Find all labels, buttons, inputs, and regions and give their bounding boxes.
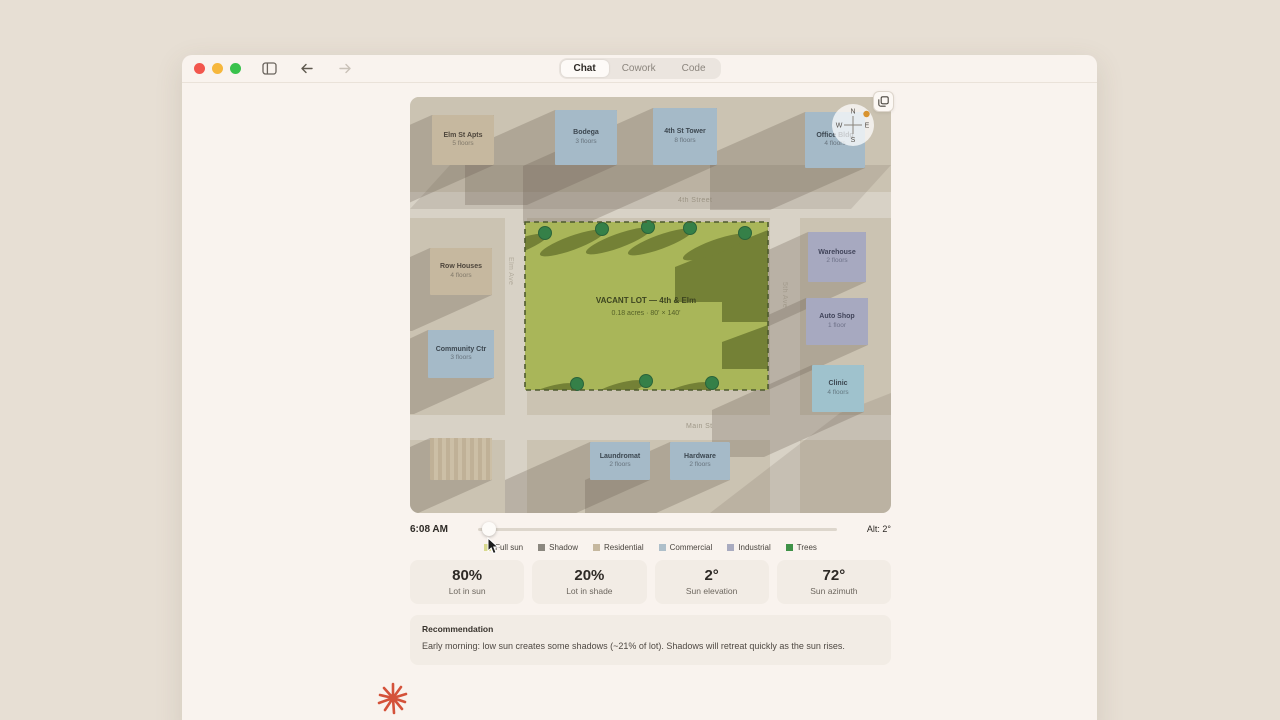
lot-title: VACANT LOT — 4th & Elm	[596, 296, 696, 305]
compass-s: S	[851, 137, 856, 144]
legend-commercial[interactable]: Commercial	[659, 543, 713, 552]
altitude-label: Alt: 2°	[847, 524, 891, 534]
recommendation-body: Early morning: low sun creates some shad…	[422, 640, 879, 654]
residential-swatch	[593, 544, 600, 551]
vacant-lot[interactable]: VACANT LOT — 4th & Elm 0.18 acres · 80' …	[410, 97, 891, 513]
zoom-window-button[interactable]	[230, 63, 241, 74]
sun-position-dot	[863, 111, 869, 117]
mode-tab-group: Chat Cowork Code	[558, 58, 720, 79]
shadow-swatch	[538, 544, 545, 551]
app-window: Chat Cowork Code	[182, 55, 1097, 720]
stat-label: Lot in shade	[536, 586, 642, 596]
commercial-swatch	[659, 544, 666, 551]
copy-map-button[interactable]	[873, 91, 894, 112]
time-label: 6:08 AM	[410, 524, 468, 535]
legend-label: Industrial	[738, 543, 770, 552]
legend-label: Commercial	[670, 543, 713, 552]
sun-shadow-map[interactable]: 4th Street Main St Elm Ave 5th Ave Elm S…	[410, 97, 891, 513]
stat-lot-in-shade: 20% Lot in shade	[532, 560, 646, 604]
stat-label: Sun azimuth	[781, 586, 887, 596]
trees-swatch	[786, 544, 793, 551]
industrial-swatch	[727, 544, 734, 551]
tab-cowork[interactable]: Cowork	[609, 60, 669, 77]
tab-code[interactable]: Code	[669, 60, 719, 77]
sun-stats-row: 80% Lot in sun 20% Lot in shade 2° Sun e…	[410, 560, 891, 604]
back-button[interactable]	[297, 60, 317, 78]
traffic-lights	[194, 63, 241, 74]
stat-value: 20%	[536, 567, 642, 584]
tab-chat[interactable]: Chat	[560, 60, 608, 77]
time-slider-thumb[interactable]	[482, 522, 496, 536]
mouse-cursor	[487, 537, 500, 555]
sidebar-toggle-icon[interactable]	[259, 60, 279, 78]
close-window-button[interactable]	[194, 63, 205, 74]
stat-lot-in-sun: 80% Lot in sun	[410, 560, 524, 604]
legend-label: Residential	[604, 543, 644, 552]
legend-shadow[interactable]: Shadow	[538, 543, 578, 552]
legend-industrial[interactable]: Industrial	[727, 543, 770, 552]
compass-n: N	[850, 109, 855, 116]
time-slider[interactable]	[478, 522, 837, 536]
compass-e: E	[865, 123, 870, 130]
legend-label: Trees	[797, 543, 817, 552]
lot-subtitle: 0.18 acres · 80' × 140'	[611, 310, 680, 317]
copy-icon	[878, 96, 889, 107]
stat-label: Lot in sun	[414, 586, 520, 596]
legend-residential[interactable]: Residential	[593, 543, 644, 552]
recommendation-heading: Recommendation	[422, 624, 879, 634]
forward-button[interactable]	[335, 60, 355, 78]
legend-label: Shadow	[549, 543, 578, 552]
minimize-window-button[interactable]	[212, 63, 223, 74]
stat-value: 72°	[781, 567, 887, 584]
legend-trees[interactable]: Trees	[786, 543, 817, 552]
title-bar: Chat Cowork Code	[182, 55, 1097, 83]
map-canvas: 4th Street Main St Elm Ave 5th Ave Elm S…	[410, 97, 891, 513]
stat-sun-elevation: 2° Sun elevation	[655, 560, 769, 604]
time-slider-track[interactable]	[478, 528, 837, 531]
stat-value: 2°	[659, 567, 765, 584]
map-legend: Full sun Shadow Residential Commercial I…	[410, 543, 891, 552]
stat-sun-azimuth: 72° Sun azimuth	[777, 560, 891, 604]
recommendation-card: Recommendation Early morning: low sun cr…	[410, 615, 891, 665]
compass-rose: N E S W	[831, 103, 875, 147]
stat-label: Sun elevation	[659, 586, 765, 596]
stat-value: 80%	[414, 567, 520, 584]
compass-w: W	[836, 123, 843, 130]
starburst-decoration	[375, 680, 411, 716]
